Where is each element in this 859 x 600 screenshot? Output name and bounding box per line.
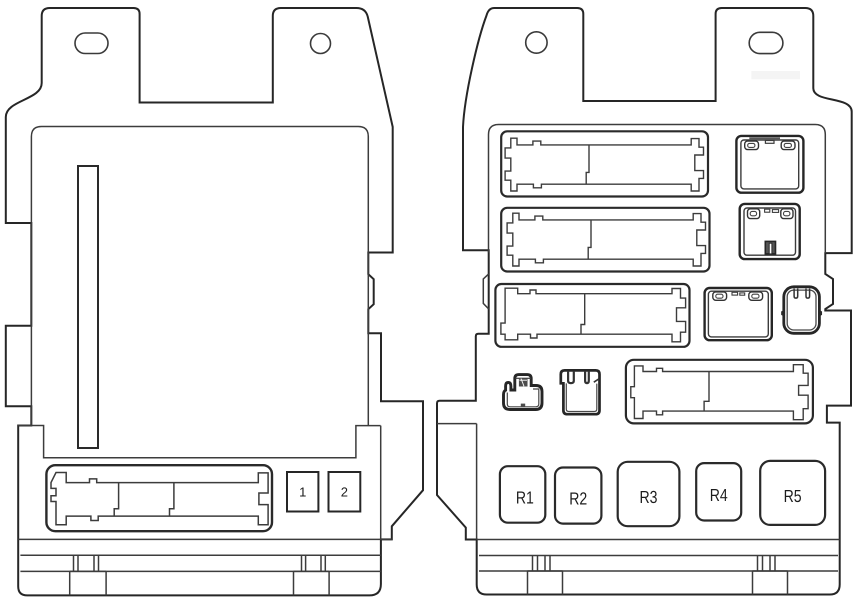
svg-text:1: 1 <box>299 485 306 500</box>
svg-text:R3: R3 <box>640 487 658 507</box>
svg-text:R4: R4 <box>710 485 728 505</box>
svg-text:R2: R2 <box>569 488 587 508</box>
svg-text:R1: R1 <box>516 487 534 507</box>
svg-text:R5: R5 <box>784 486 802 506</box>
svg-text:2: 2 <box>341 485 348 500</box>
